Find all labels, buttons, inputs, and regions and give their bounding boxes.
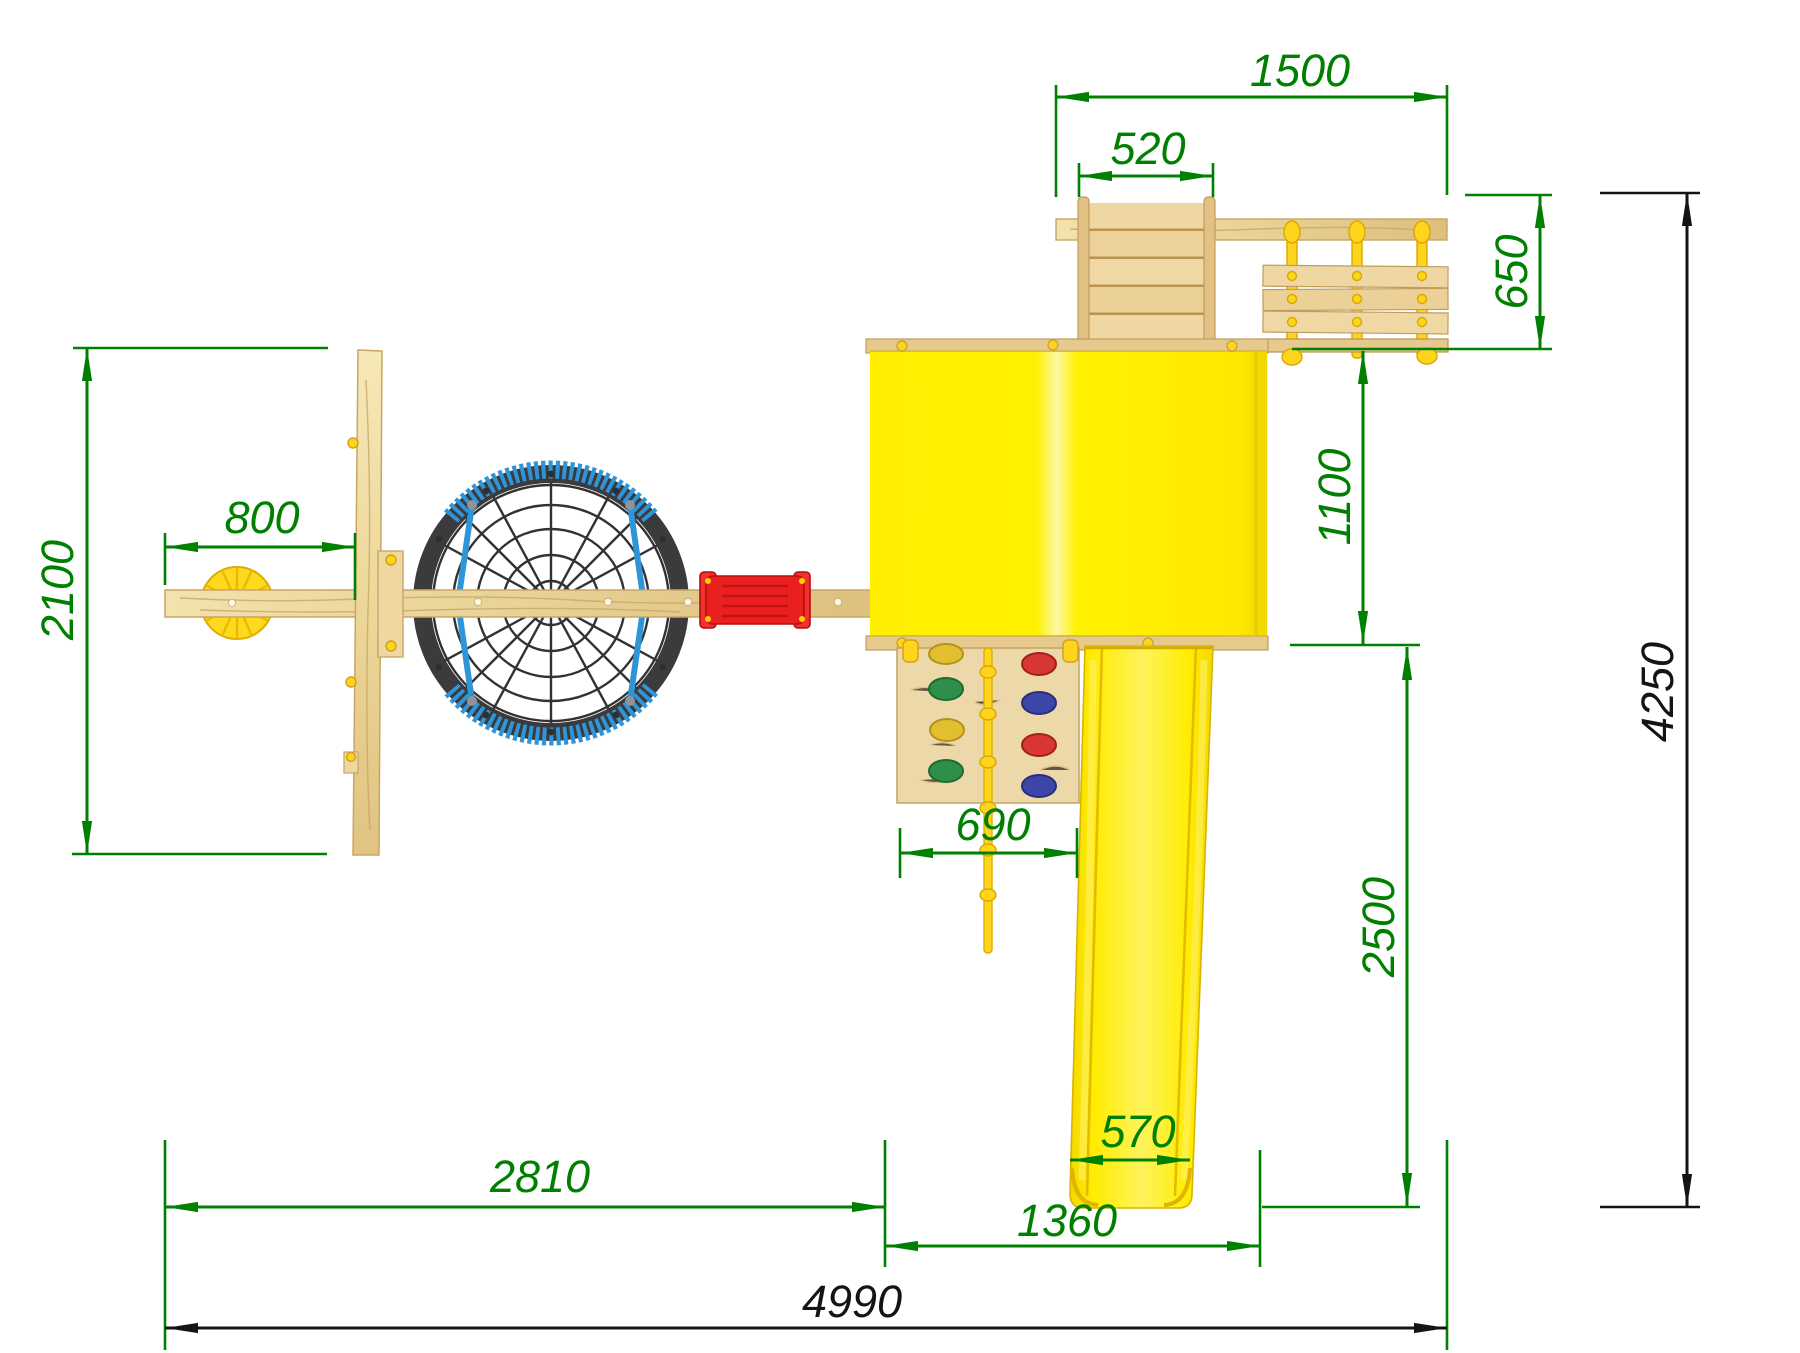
dimension-520: 520	[1079, 123, 1213, 197]
dimension-label: 4990	[802, 1276, 902, 1327]
dimension-1500: 1500	[1056, 45, 1447, 197]
ramp-rail-left	[1078, 197, 1089, 343]
dimension-2810: 2810	[165, 1140, 885, 1350]
ramp-slats	[1089, 203, 1205, 343]
technical-drawing-canvas: 1500 520 650 2100 800 1100 690	[0, 0, 1800, 1353]
dimension-label: 520	[1110, 123, 1185, 174]
rope-bridge	[1258, 221, 1448, 365]
dimension-label: 1500	[1250, 45, 1350, 96]
dimension-label: 1360	[1017, 1195, 1117, 1246]
climbing-hold	[930, 719, 964, 741]
dimension-1100: 1100	[1290, 351, 1420, 645]
climbing-hold	[929, 644, 963, 664]
dimension-2500: 2500	[1262, 647, 1420, 1207]
climbing-hold	[1022, 692, 1056, 714]
dimension-label: 690	[955, 799, 1030, 850]
dimension-label: 4250	[1632, 642, 1683, 742]
dimension-label: 570	[1100, 1106, 1175, 1157]
dimension-4250: 4250	[1600, 193, 1700, 1207]
ramp-rail-right	[1204, 197, 1215, 343]
climbing-ramp	[1078, 197, 1215, 343]
dimension-label: 2810	[489, 1151, 590, 1202]
dimension-label: 800	[224, 492, 299, 543]
dimension-label: 650	[1486, 234, 1537, 309]
climbing-hold	[929, 678, 963, 700]
climbing-hold	[1022, 734, 1056, 756]
dimension-label: 2500	[1353, 877, 1404, 978]
climbing-hold	[1022, 653, 1056, 675]
tower-roof-panel	[870, 350, 1267, 637]
climbing-wall	[897, 640, 1079, 953]
climbing-hold	[1022, 775, 1056, 797]
dimension-label: 1100	[1309, 449, 1360, 546]
climbing-hold	[929, 760, 963, 782]
swing-seat-red	[700, 572, 810, 628]
tower-roof	[866, 339, 1268, 650]
dimension-label: 2100	[32, 540, 83, 641]
